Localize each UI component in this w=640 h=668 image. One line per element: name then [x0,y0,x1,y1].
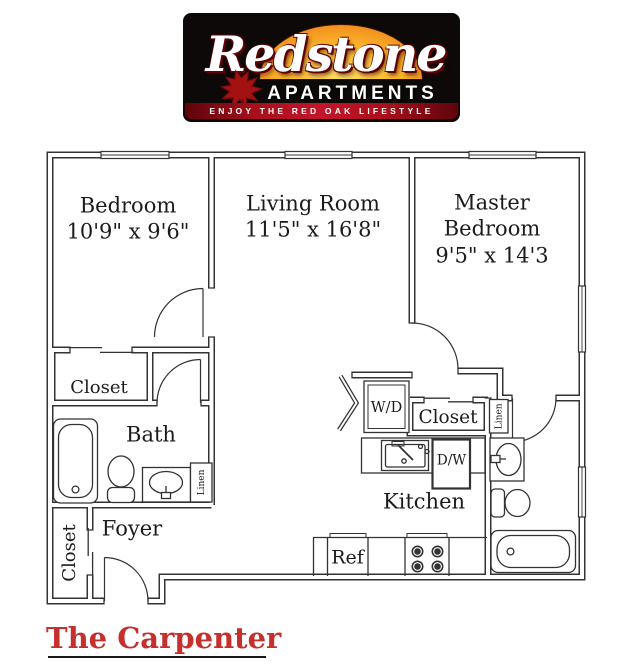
floorplan-page: { "logo": { "brand": "Redstone", "wordma… [0,0,640,668]
master-toilet [491,489,530,517]
foyer-label: Foyer [102,517,163,541]
fridge-label: Ref [331,547,366,569]
hall-linen-label: Linen [494,403,504,429]
foyer-closet-label: Closet [59,523,80,581]
bath-linen-label: Linen [197,469,207,495]
foyer-closet-slider [88,528,92,577]
master-closet-slider [424,398,473,402]
bedroom-label: Bedroom [80,194,177,218]
master-bath-door [513,398,557,442]
bedroom-closet-slider [68,348,134,353]
washer-dryer-label: W/D [371,400,402,416]
kitchen-sink [382,441,430,471]
dishwasher-label: D/W [437,453,466,469]
entry-door [105,558,149,602]
stove-burners [412,546,442,571]
living-room-label: Living Room [246,192,380,216]
bathtub [54,419,98,503]
plan-title: The Carpenter [46,621,281,655]
master-bath-sink [490,438,524,481]
living-room-dims: 11'5" x 16'8" [245,218,381,242]
master-bedroom-door [412,323,458,369]
room-labels: Bedroom 10'9" x 9'6" Living Room 11'5" x… [59,191,549,582]
bedroom-closet-label: Closet [70,377,128,398]
kitchen-label: Kitchen [383,490,465,514]
toilet [108,456,135,503]
bath-door [157,360,201,404]
title-underline [48,656,266,658]
bath-sink [143,468,191,503]
master-closet-label: Closet [418,407,478,428]
bedroom-dims: 10'9" x 9'6" [67,220,190,244]
floorplan-drawing: Bedroom 10'9" x 9'6" Living Room 11'5" x… [0,0,640,668]
master-bedroom-label-2: Bedroom [444,217,541,241]
master-bedroom-dims: 9'5" x 14'3 [435,244,548,268]
master-bedroom-label-1: Master [454,191,531,215]
wd-bifold-door [339,376,357,430]
bath-label: Bath [126,423,176,447]
master-bathtub [491,531,576,573]
bedroom-door [155,289,204,338]
stove-box [405,538,449,577]
